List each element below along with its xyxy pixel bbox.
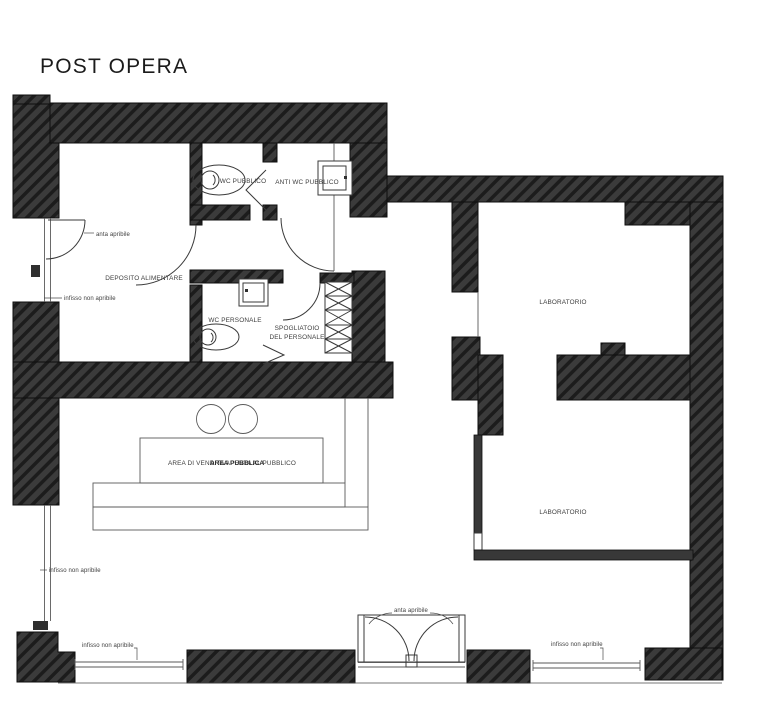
door-swing-right (414, 617, 458, 661)
page-title: POST OPERA (40, 55, 188, 78)
room-label-deposito: DEPOSITO ALIMENTARE (105, 275, 183, 282)
wall-top-band-right (387, 176, 723, 202)
window-left-lower (33, 505, 51, 630)
folding-door-wc-personale (263, 345, 284, 364)
wall-lab-left-pier (452, 337, 480, 400)
annotation-infisso-bottom-left: infisso non apribile (82, 643, 134, 649)
wall-between-labs-notch (601, 343, 625, 355)
window-mullion-mark (31, 265, 40, 277)
room-label-spogliatoio-line2: DEL PERSONALE (270, 334, 325, 341)
leader-window-bottom-right (600, 648, 603, 660)
wall-stub-lower (263, 205, 277, 220)
walls-bottom-facade (17, 632, 722, 683)
annotation-infisso-left-lower: infisso non apribile (49, 568, 101, 574)
room-label-spogliatoio-line1: SPOGLIATOIO (275, 325, 320, 332)
floor-plan-canvas: POST OPERA (0, 0, 779, 710)
room-label-area-pubblica-overlay: AREA PUBBLICA (210, 460, 265, 467)
wall-bottom-band-block (13, 362, 393, 398)
wall-bottom-mid-left (187, 650, 355, 683)
door-swing-deposito-left (46, 220, 85, 259)
room-label-laboratorio-nord: LABORATORIO (539, 299, 586, 306)
wall-stub-upper (263, 143, 277, 162)
wall-right-outer (690, 202, 723, 680)
window-bottom-right (533, 648, 640, 671)
window-end-cap (33, 621, 48, 630)
wall-pilaster-top-right (625, 202, 690, 225)
wall-lab-left-step (478, 355, 503, 435)
floor-plan-drawing: POST OPERA (0, 0, 779, 710)
room-label-anti-wc: ANTI WC PUBBLICO (275, 179, 338, 186)
room-label-wc-personale: WC PERSONALE (208, 317, 261, 324)
annotation-anta-apribile-left: anta apribile (96, 232, 131, 238)
wall-left-mid (13, 302, 59, 362)
folding-door-wc-pubblico (246, 170, 266, 210)
door-center-mullion (406, 655, 417, 667)
entrance-double-door (358, 613, 465, 667)
wall-bottom-right-corner (645, 648, 722, 680)
table-circle (229, 405, 258, 434)
wall-deposito-wc-lower (190, 285, 202, 362)
lockers-spogliatoio (325, 282, 352, 353)
room-label-laboratorio-sud: LABORATORIO (539, 509, 586, 516)
wall-wc-pubblico-bottom (190, 205, 250, 220)
toilet-detail-icon (213, 175, 215, 185)
wall-between-labs (557, 355, 690, 400)
wall-left-lower (13, 398, 59, 505)
wall-bottom-mid-right (467, 650, 530, 683)
room-label-wc-pubblico: WC PUBBLICO (220, 178, 266, 185)
lab-sud-window (474, 533, 482, 550)
leader-window-bottom-left (134, 648, 137, 660)
counter-rect-2 (93, 483, 345, 507)
door-swing-left (365, 617, 409, 661)
wall-lab-left-upper (452, 202, 478, 292)
wall-bottom-left-corner (17, 632, 75, 682)
wall-lab-sud-bottom (474, 550, 693, 560)
wall-lab-sud-left-thin (474, 435, 482, 533)
counter-rect-3 (93, 507, 368, 530)
wall-right-of-block-upper (350, 143, 387, 217)
door-swing-spogliatoio (283, 283, 320, 320)
annotation-anta-apribile-entrance: anta apribile (394, 608, 429, 614)
annotation-infisso-left-upper: infisso non apribile (64, 296, 116, 302)
window-bottom-left (75, 648, 183, 670)
annotation-infisso-bottom-right: infisso non apribile (551, 642, 603, 648)
door-swing-corridor (281, 218, 334, 271)
window-left-upper (31, 218, 94, 302)
wall-top-band-left (50, 103, 387, 143)
walls-right-section (387, 176, 723, 680)
sink-tap-dot (245, 289, 248, 292)
wall-personale-top (190, 270, 283, 283)
toilet-detail-icon (211, 333, 213, 342)
toilet-bowl-icon (201, 171, 219, 189)
table-circle (197, 405, 226, 434)
sink-tap-dot (344, 176, 347, 179)
